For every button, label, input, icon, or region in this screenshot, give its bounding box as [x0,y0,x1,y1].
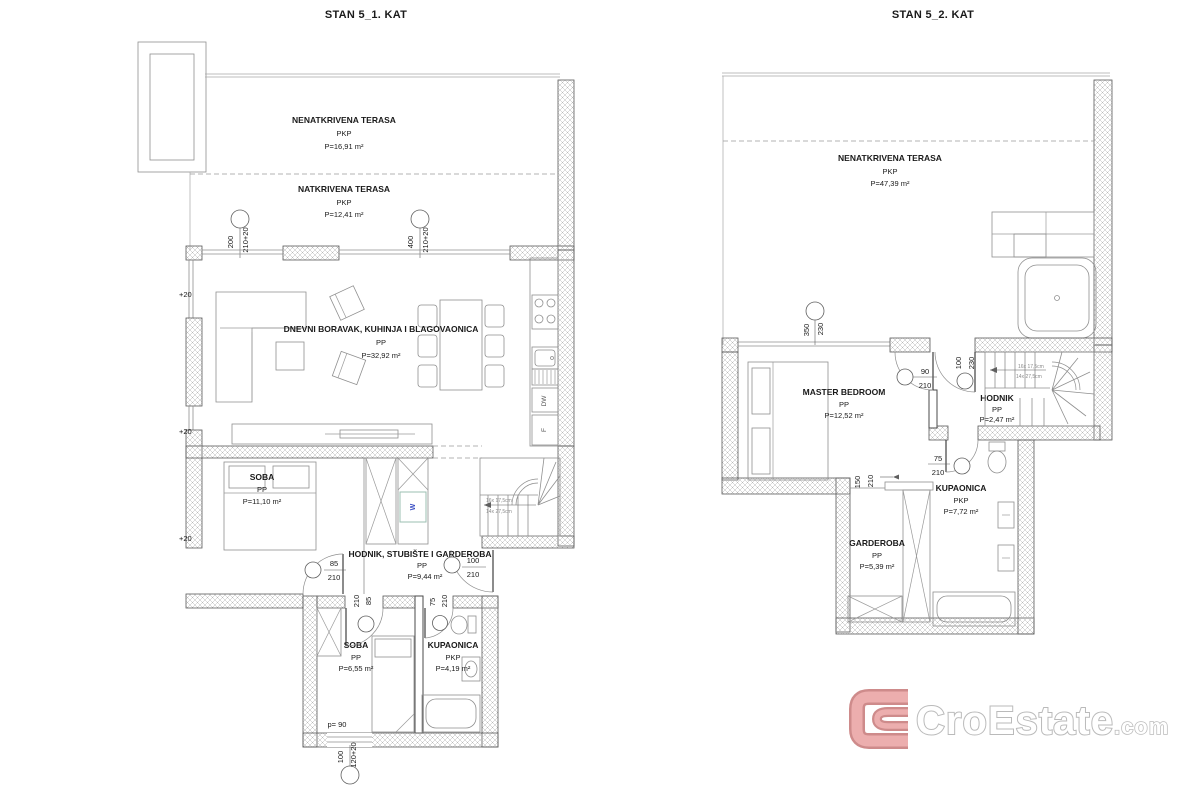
dim-value: 210+20 [241,227,250,252]
dim-value: 210 [919,381,932,390]
wall-lower-right [1018,440,1034,634]
dim-value: 210 [932,468,945,477]
stairs-note: 14x 27,5cm [1016,374,1042,380]
dim-value: 350 [802,324,811,337]
dim-marker [231,210,249,228]
dim-value: 210 [440,595,449,608]
outdoor-counter [992,212,1094,257]
plan1-living-room: DNEVNI BORAVAK, KUHINJA I BLAGOVAONICA P… [216,286,504,444]
dim-value: 400 [406,236,415,249]
dim-marker [433,616,448,631]
dim-value: 85 [330,559,338,568]
level-marker: +20 [179,427,192,436]
wall-living-south [186,446,433,458]
parapet-note: p= 90 [328,720,347,729]
wall-lower-left [303,596,317,747]
washing-machine-label: W [410,503,417,510]
kitchen-counter [530,258,558,446]
opening-arrow [893,475,899,480]
stairs-note: 16x 17,5cm [486,498,512,504]
plan2-terrace: NENATKRIVENA TERASA PKP P=47,39 m² [722,73,1112,345]
dim-marker [954,458,970,474]
logo-tld-text: .com [1114,714,1169,739]
plan2-title: STAN 5_2. KAT [892,9,974,21]
dishwasher-label: DW [541,395,548,407]
wall-stairs-south [482,536,574,548]
dim-value: 100 [336,751,345,764]
room-area: P=7,72 m² [944,507,979,516]
room-code: PP [992,405,1002,414]
dining-chairs [418,305,504,387]
room-label: SOBA [250,472,275,482]
plan1-terrace: NENATKRIVENA TERASA PKP P=16,91 m² NATKR… [138,42,574,250]
dim-marker [444,557,460,573]
dim-value: 230 [816,323,825,336]
croestate-logo-icon [857,697,908,741]
wall-right [558,250,574,446]
dim-marker [305,562,321,578]
room-code: PP [351,653,361,662]
stair-direction-arrow [990,367,997,373]
dim-marker [806,302,824,320]
dim-value: 230 [967,357,976,370]
wall-left [722,352,738,480]
hot-tub [1018,258,1096,338]
dim-value: 90 [921,367,929,376]
sofa [216,292,306,402]
room-code: PKP [336,129,351,138]
plan1-bathroom: KUPAONICA PKP P=4,19 m² 75 210 [422,595,480,732]
dim-value: 210+20 [421,227,430,252]
single-bed [372,636,414,732]
room-area: P=32,92 m² [362,351,401,360]
room-label: GARDEROBA [849,538,905,548]
plan1-walls: +20 +20 +20 [179,246,574,747]
room-area: P=4,19 m² [436,664,471,673]
wardrobe-closet [398,458,428,544]
level-marker: +20 [179,534,192,543]
skylight-shaft [138,42,206,172]
floorplan-drawing: STAN 5_1. KAT NENATKRIVENA TERASA PKP P=… [0,0,1200,800]
room-code: PP [257,485,267,494]
level-marker: +20 [179,290,192,299]
terrace-wall-right [558,80,574,250]
dim-value: 200 [226,236,235,249]
room-label: KUPAONICA [936,483,987,493]
room-code: PP [872,551,882,560]
plan1-kitchen: DW F [530,258,558,446]
room-label: KUPAONICA [428,640,479,650]
toilet [451,616,467,634]
double-bed [748,362,828,480]
terrace-wall-right [1094,80,1112,345]
room-code: PKP [336,198,351,207]
coffee-table [276,342,304,370]
plan2-bathroom: 75 210 KUPAONICA PKP P=7,72 m² [928,440,1015,626]
room-code: PP [417,561,427,570]
stairs-note: 16x 17,5cm [1018,364,1044,370]
room-area: P=16,91 m² [325,142,364,151]
fridge-label: F [541,428,548,432]
room-area: P=12,41 m² [325,210,364,219]
logo-text: CroEstate.com [916,699,1169,743]
dim-marker [957,373,973,389]
dim-value: 75 [934,454,942,463]
plan2: STAN 5_2. KAT NENATKRIVENA TERASA PKP P=… [722,9,1112,634]
staircase [480,458,560,536]
plan1-bedroom2: SOBA PP P=6,55 m² 210 85 p= 90 100 120+2… [317,595,414,784]
dim-value: 210 [352,595,361,608]
room-area: P=11,10 m² [243,497,282,506]
dim-value: 150 [853,476,862,489]
floorplan-sheet: STAN 5_1. KAT NENATKRIVENA TERASA PKP P=… [0,0,1200,800]
room-area: P=6,55 m² [339,664,374,673]
room-label: NENATKRIVENA TERASA [292,115,396,125]
dim-marker [411,210,429,228]
plan1-title: STAN 5_1. KAT [325,9,407,21]
dim-marker [341,766,359,784]
dim-value: 210 [866,475,875,488]
dim-value: 75 [428,598,437,606]
plan1: STAN 5_1. KAT NENATKRIVENA TERASA PKP P=… [138,9,574,784]
room-code: PP [839,400,849,409]
toilet [989,442,1005,451]
sink-drainer [532,369,558,385]
plan2-wardrobe-room: 150 210 GARDEROBA PP P=5,39 m² [848,475,933,623]
dining-table [440,300,482,390]
wall-lower-right [482,596,498,747]
dim-value: 100 [467,556,480,565]
room-label: MASTER BEDROOM [803,387,886,397]
dim-value: 210 [467,570,480,579]
room-area: P=47,39 m² [871,179,910,188]
room-label: NENATKRIVENA TERASA [838,153,942,163]
room-code: PKP [445,653,460,662]
dim-marker [897,369,913,385]
room-label: DNEVNI BORAVAK, KUHINJA I BLAGOVAONICA [284,324,479,334]
armchair [330,286,365,321]
plan1-stairs: 16x 17,5cm 14x 27,5cm [480,458,560,536]
dim-value: 210 [328,573,341,582]
room-label: NATKRIVENA TERASA [298,184,390,194]
wall-partition [929,390,937,428]
room-area: P=12,52 m² [825,411,864,420]
dim-value: 85 [364,597,373,605]
dim-value: 120+20 [349,742,358,767]
plan2-dims: 350 230 [802,302,825,345]
dim-value: 100 [954,357,963,370]
logo-brand-text: CroEstate [916,699,1114,743]
stairs-note: 14x 27,5cm [486,509,512,515]
room-code: PP [376,338,386,347]
room-label: SOBA [344,640,369,650]
dim-marker [358,616,374,632]
sliding-door [885,482,933,490]
room-code: PKP [882,167,897,176]
room-area: P=9,44 m² [408,572,443,581]
wall-bedroom-south [186,594,303,608]
plan1-bedroom1: SOBA PP P=11,10 m² 85 210 [224,462,346,594]
croestate-logo: CroEstate.com [857,697,1169,743]
room-area: P=5,39 m² [860,562,895,571]
room-code: PKP [953,496,968,505]
plan1-hall: W HODNIK, STUBIŠTE I GARDEROBA PP P=9,44… [348,458,493,594]
